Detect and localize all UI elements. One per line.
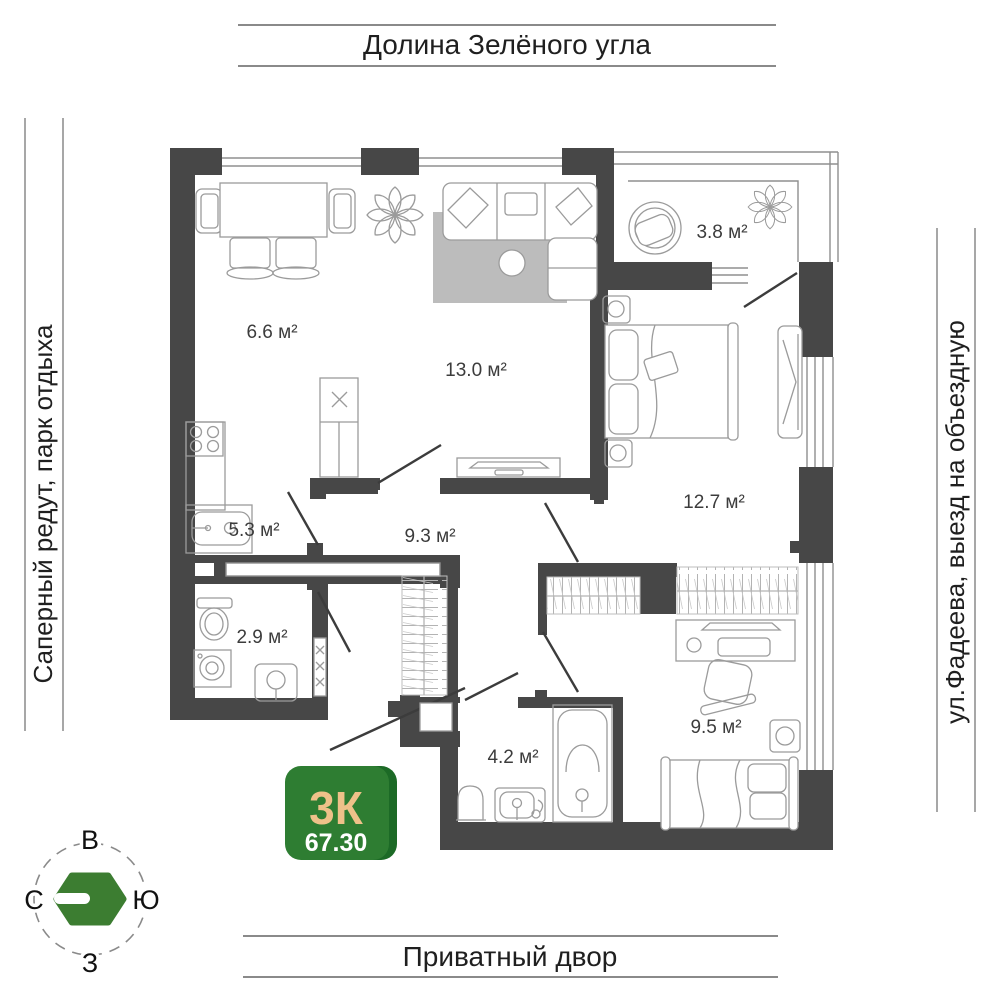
entry-threshold [420, 703, 452, 731]
tv-stand [457, 458, 560, 477]
accessory [538, 800, 543, 812]
door-swing-balcony [744, 273, 797, 307]
coffee-table [499, 250, 525, 276]
drain [576, 789, 588, 801]
banner-right-label: ул.Фадеева, выезд на объездную [940, 320, 970, 724]
badge-area-label: 67.30 [305, 829, 368, 857]
floor-plan: Долина Зелёного угла Приватный двор Сапе… [0, 0, 1000, 1000]
window-kitchen [222, 158, 361, 166]
banner-bottom-label: Приватный двор [403, 941, 618, 972]
compass-north: С [24, 885, 44, 915]
kitchen-cabinet [320, 378, 358, 477]
chair [230, 238, 270, 268]
room-label-kitchen-work: 5.3 м² [228, 520, 279, 541]
dining-set [196, 183, 355, 279]
banner-top-label: Долина Зелёного угла [363, 29, 651, 60]
nightstand [605, 440, 632, 467]
pillow [505, 193, 537, 215]
window-balcony-bedroom [712, 268, 748, 283]
door-swing-living [378, 445, 441, 483]
room-label-bathroom: 4.2 м² [487, 747, 538, 768]
plant-icon [748, 185, 792, 229]
room-label-living: 13.0 м² [445, 360, 507, 381]
bedroom-furniture [603, 296, 802, 467]
plant-icon [367, 187, 423, 243]
shaft [314, 638, 326, 696]
banner-top: Долина Зелёного угла [238, 25, 776, 66]
door-swing-kitchen [288, 492, 318, 545]
banner-left-label: Саперный редут, парк отдыха [28, 324, 58, 683]
banner-bottom: Приватный двор [243, 936, 778, 977]
hall-wardrobe [402, 576, 447, 695]
floorplan-page: Долина Зелёного угла Приватный двор Сапе… [0, 0, 1000, 1000]
room-label-balcony: 3.8 м² [696, 222, 747, 243]
footboard [661, 757, 670, 830]
compass-south: Ю [132, 885, 159, 915]
door-swing-bedroom [545, 503, 578, 562]
footboard [728, 323, 738, 440]
door-swing-entry-2 [465, 673, 518, 700]
nightstand [770, 720, 800, 752]
papasan-chair [629, 202, 681, 254]
bathroom-sink [495, 788, 545, 822]
bathroom-small-fixtures [194, 598, 297, 701]
window-bedroom-small-right [807, 563, 833, 770]
room-label-bathroom-small: 2.9 м² [236, 627, 287, 648]
double-bed [605, 325, 728, 438]
toilet-tank [197, 598, 232, 608]
compass-west: З [82, 948, 98, 978]
compass-logo-icon [54, 876, 123, 922]
banner-right: ул.Фадеева, выезд на объездную [937, 228, 975, 812]
desk-chair [702, 658, 753, 706]
chair [276, 238, 316, 268]
door-swing-bathroom [543, 632, 578, 692]
area-badge: 3К 67.30 [285, 766, 397, 860]
room-label-bedroom: 12.7 м² [683, 492, 745, 513]
compass-east: В [81, 825, 99, 855]
desk [676, 620, 795, 661]
room-label-hallway: 9.3 м² [404, 526, 455, 547]
single-bed [665, 760, 795, 828]
room-label-bedroom-small: 9.5 м² [690, 717, 741, 738]
room-labels: 6.6 м² 13.0 м² 3.8 м² 12.7 м² 5.3 м² 9.3… [228, 222, 747, 768]
toilet [458, 786, 483, 820]
window-living [419, 158, 562, 166]
dining-table [220, 183, 327, 237]
compass: В С Ю З [24, 825, 159, 978]
duct-partition [226, 563, 440, 576]
badge-rooms-label: 3К [309, 782, 364, 834]
window-bedroom-right [807, 357, 833, 467]
headboard [789, 757, 798, 830]
banner-left: Саперный редут, парк отдыха [25, 118, 63, 731]
room-label-kitchen-dining: 6.6 м² [246, 322, 297, 343]
